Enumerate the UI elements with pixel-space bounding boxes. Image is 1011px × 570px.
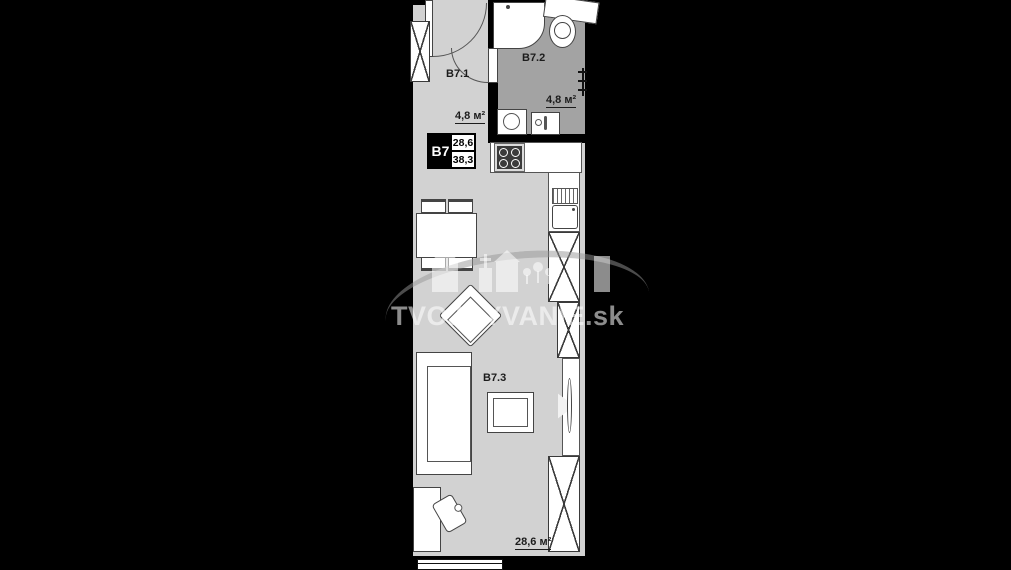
stove-burner-3: [499, 159, 508, 168]
towel-radiator-tick-1: [578, 71, 587, 73]
wall-right: [585, 0, 612, 570]
stove-burner-1: [499, 148, 508, 157]
window: [417, 559, 503, 570]
dining-chair-2: [448, 199, 473, 213]
bathroom-door-leaf: [488, 48, 498, 83]
area-label-bathroom: 4,8 м²: [546, 94, 576, 108]
desk: [413, 487, 441, 552]
wall-left: [399, 0, 413, 570]
unit-code: B7: [432, 143, 450, 159]
tv-screen: [567, 378, 572, 433]
dining-chair-3: [421, 257, 446, 271]
area-label-hall: 4,8 м²: [455, 110, 485, 124]
wardrobe-bottom-right: [548, 456, 580, 552]
towel-radiator-tick-2: [578, 80, 587, 82]
unit-area-living: 28,6: [452, 135, 474, 152]
cabinet-mid: [557, 302, 580, 358]
floor-plan-canvas: B7.1 B7.2 B7.3 4,8 м² 4,8 м² 28,6 м² B7 …: [0, 0, 1011, 570]
kitchen-tall-cabinet: [548, 232, 580, 302]
towel-radiator-tick-3: [578, 89, 587, 91]
toilet-bowl: [535, 119, 542, 126]
window-glazing-line: [418, 563, 502, 564]
unit-areas-cell: 28,6 38,3: [452, 135, 474, 167]
dining-table: [416, 213, 477, 258]
unit-area-total: 38,3: [452, 152, 474, 167]
toilet-flush: [544, 116, 547, 130]
area-label-living: 28,6 м²: [515, 536, 551, 550]
hall-wardrobe: [410, 21, 430, 82]
sink-drainboard: [552, 188, 578, 204]
coffee-table-inner: [493, 398, 528, 427]
room-label-living: B7.3: [483, 372, 506, 384]
dining-chair-4: [448, 257, 473, 271]
dining-chair-1: [421, 199, 446, 213]
room-label-bathroom: B7.2: [522, 52, 545, 64]
stove-burner-2: [511, 148, 520, 157]
stove-burner-4: [511, 159, 520, 168]
unit-code-cell: B7: [429, 135, 452, 167]
pedestal-sink-bowl: [554, 22, 571, 39]
sofa-seat: [427, 366, 471, 462]
bathtub-drain: [506, 5, 510, 9]
room-label-hall: B7.1: [446, 68, 469, 80]
unit-info-box: B7 28,6 38,3: [427, 133, 476, 169]
washing-machine-drum: [503, 113, 520, 130]
coffee-table: [487, 392, 534, 433]
kitchen-faucet: [572, 208, 575, 211]
